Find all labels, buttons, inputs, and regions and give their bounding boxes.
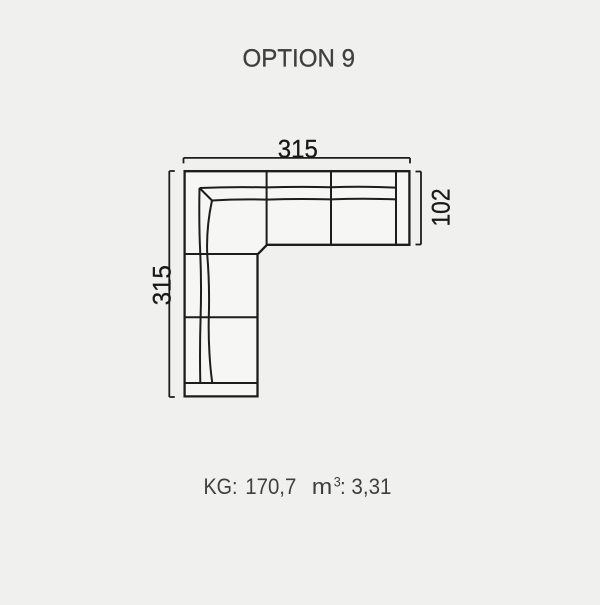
svg-text:315: 315 xyxy=(148,265,176,305)
svg-text:KG:: KG: xyxy=(204,474,238,499)
svg-text:315: 315 xyxy=(278,136,318,164)
svg-text:m: m xyxy=(312,474,333,499)
svg-text:OPTION 9: OPTION 9 xyxy=(243,45,356,73)
svg-text:170,7: 170,7 xyxy=(245,474,296,499)
svg-text:: 3,31: : 3,31 xyxy=(340,474,392,499)
svg-text:102: 102 xyxy=(428,189,456,227)
